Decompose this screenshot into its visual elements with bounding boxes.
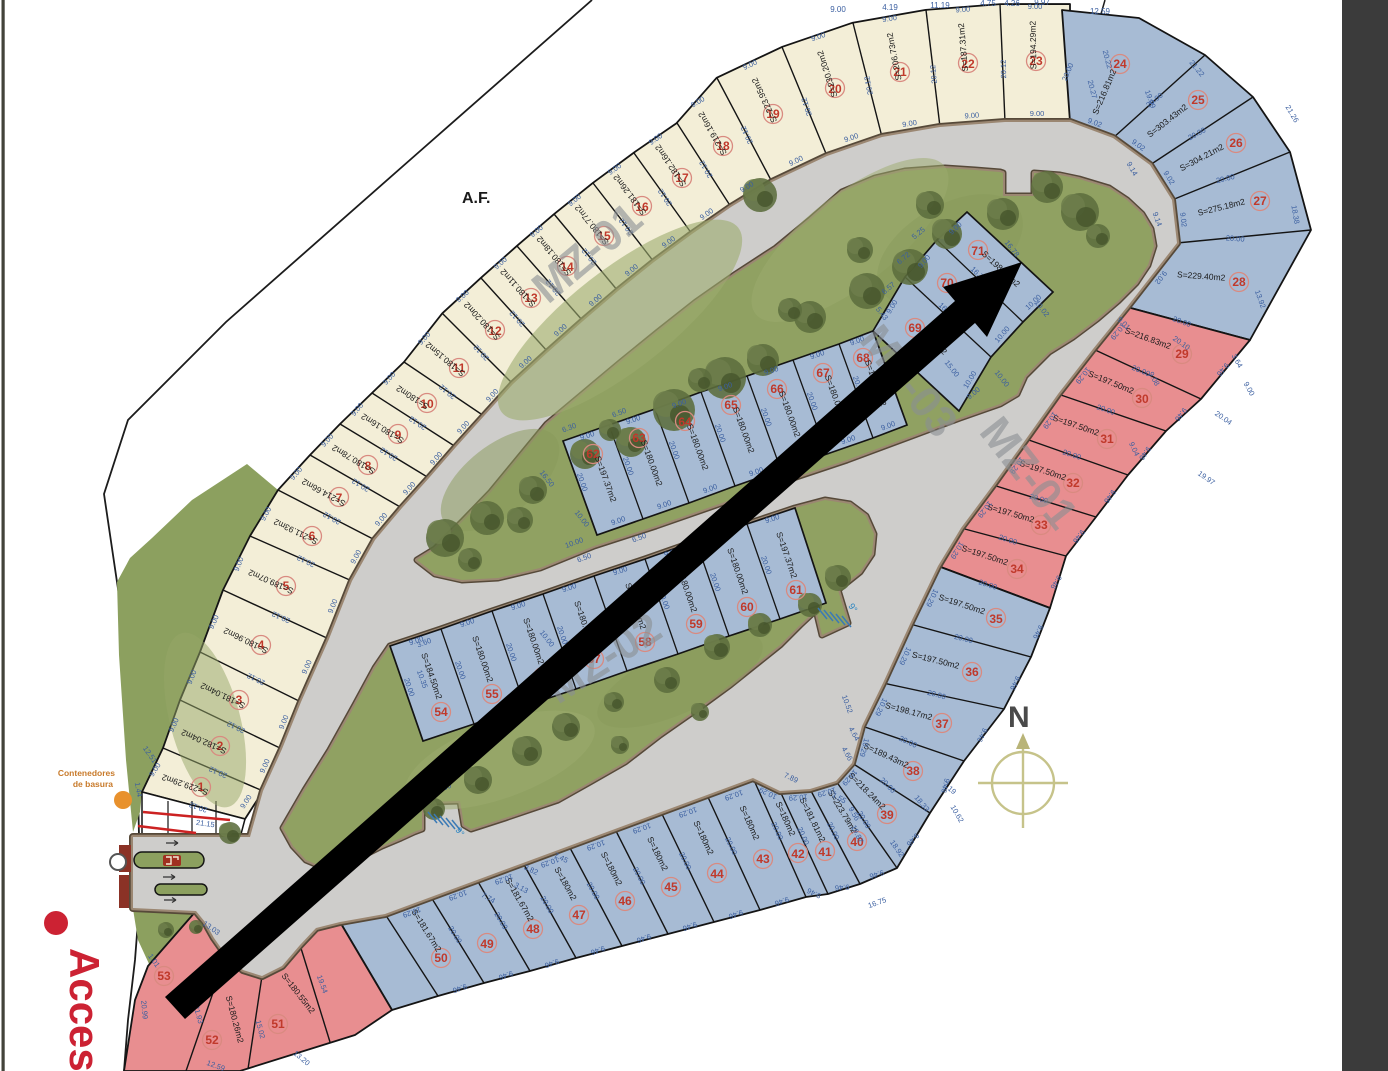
svg-text:Contenedores: Contenedores — [58, 768, 115, 778]
svg-text:20.99: 20.99 — [139, 1000, 150, 1019]
svg-text:9.00: 9.00 — [1030, 109, 1045, 118]
svg-text:34: 34 — [1010, 562, 1024, 576]
svg-text:24: 24 — [1113, 57, 1127, 71]
svg-text:9.00: 9.00 — [964, 111, 979, 121]
svg-text:44: 44 — [710, 867, 724, 881]
svg-text:12.59: 12.59 — [1090, 7, 1111, 16]
svg-text:42: 42 — [791, 847, 805, 861]
svg-text:50: 50 — [434, 951, 448, 965]
svg-text:54: 54 — [434, 705, 448, 719]
svg-text:N: N — [1008, 701, 1030, 734]
svg-text:11.19: 11.19 — [930, 1, 950, 10]
svg-text:39: 39 — [880, 808, 894, 822]
svg-text:9.00: 9.00 — [830, 5, 846, 14]
svg-text:20.12: 20.12 — [999, 60, 1008, 79]
svg-text:26: 26 — [1229, 136, 1243, 150]
svg-text:27: 27 — [1253, 194, 1267, 208]
svg-text:59: 59 — [689, 617, 703, 631]
svg-text:53: 53 — [157, 969, 171, 983]
svg-text:41: 41 — [818, 845, 832, 859]
svg-text:de basura: de basura — [73, 779, 113, 789]
svg-text:45: 45 — [664, 880, 678, 894]
svg-text:4.19: 4.19 — [882, 3, 898, 12]
svg-text:28: 28 — [1232, 275, 1246, 289]
svg-text:51: 51 — [271, 1017, 285, 1031]
svg-text:43: 43 — [756, 852, 770, 866]
svg-text:4.75: 4.75 — [980, 0, 996, 8]
svg-text:37: 37 — [935, 717, 949, 731]
svg-text:A.F.: A.F. — [462, 190, 490, 207]
svg-text:9.00: 9.00 — [955, 5, 970, 15]
svg-text:35: 35 — [989, 612, 1003, 626]
svg-text:4.26: 4.26 — [1004, 0, 1020, 8]
svg-text:47: 47 — [572, 908, 586, 922]
svg-text:25: 25 — [1191, 93, 1205, 107]
svg-text:46: 46 — [618, 894, 632, 908]
svg-text:9.97: 9.97 — [1034, 0, 1050, 7]
svg-text:9.02: 9.02 — [1178, 212, 1189, 228]
svg-text:36: 36 — [965, 665, 979, 679]
svg-text:S=194.29m2: S=194.29m2 — [1028, 20, 1039, 69]
svg-text:30: 30 — [1135, 392, 1149, 406]
svg-text:Acceso: Acceso — [61, 948, 108, 1071]
svg-text:61: 61 — [789, 583, 803, 597]
svg-text:52: 52 — [205, 1033, 219, 1047]
svg-text:20.12: 20.12 — [928, 64, 939, 83]
svg-text:9.46: 9.46 — [835, 882, 850, 892]
svg-text:60: 60 — [740, 600, 754, 614]
svg-text:48: 48 — [526, 922, 540, 936]
svg-text:20.00: 20.00 — [1225, 233, 1244, 243]
svg-text:31: 31 — [1100, 432, 1114, 446]
svg-text:38: 38 — [906, 764, 920, 778]
svg-text:10.29: 10.29 — [788, 792, 807, 802]
svg-text:55: 55 — [485, 687, 499, 701]
svg-text:49: 49 — [480, 937, 494, 951]
